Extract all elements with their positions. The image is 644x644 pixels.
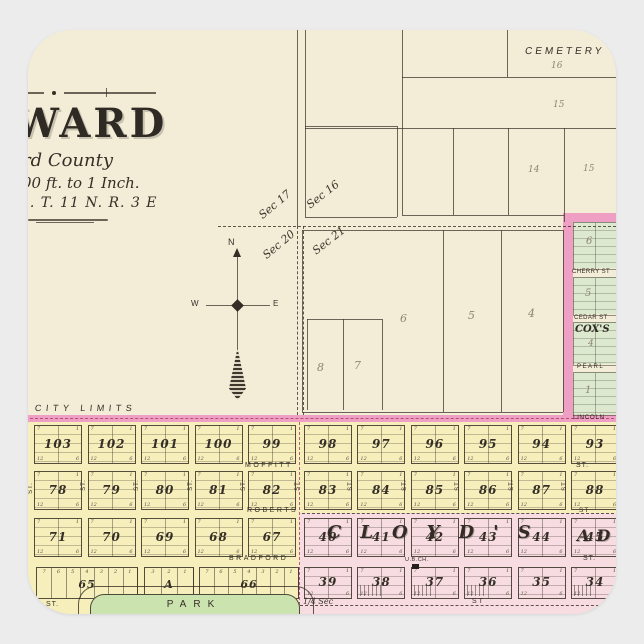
city-limits-dashes <box>30 418 614 419</box>
lot-number: 6 <box>506 550 509 555</box>
cedar-street-label: CEDAR ST <box>574 315 608 321</box>
lot-number: 6 <box>183 550 186 555</box>
city-block: 7112685 <box>411 471 459 510</box>
block-number: 81 <box>196 483 242 497</box>
block-number: 79 <box>89 483 135 497</box>
lot-number: 7 <box>37 473 40 478</box>
lot-number: 7 <box>574 569 577 574</box>
lot-number: 7 <box>91 473 94 478</box>
block-number: 94 <box>519 437 565 451</box>
south-st-label: ST <box>472 598 485 605</box>
city-block: 71126100 <box>195 425 243 464</box>
block-number: 88 <box>572 483 616 497</box>
city-block: 7112686 <box>464 471 512 510</box>
lot-number: 12 <box>91 457 97 462</box>
lot-number: 1 <box>453 427 456 432</box>
lot-number: 6 <box>129 550 132 555</box>
lot-number: 7 <box>37 520 40 525</box>
lot-number: 7 <box>574 427 577 432</box>
lot-number: 4 <box>80 569 94 575</box>
city-block: 7112667 <box>248 518 296 557</box>
lot-number: 3 <box>256 569 270 575</box>
lot-number: 6 <box>399 503 402 508</box>
lot-number: 6 <box>183 503 186 508</box>
lot-number: 6 <box>290 550 293 555</box>
outlot-number-6: 6 <box>400 312 407 325</box>
compass-west-label: W <box>191 299 199 308</box>
block-number: 82 <box>249 483 295 497</box>
lot-number: 1 <box>236 473 239 478</box>
lot-number: 12 <box>307 503 313 508</box>
pearl-street-label: PEARL <box>577 364 604 370</box>
city-block: 7112634 <box>571 567 616 599</box>
cox-block-1: 1 <box>585 385 591 396</box>
lot-number: 6 <box>613 592 616 597</box>
lot-number: 7 <box>467 427 470 432</box>
lot-number: 1 <box>76 520 79 525</box>
west-edge-street-label: ST. <box>28 482 34 494</box>
lot-number: 6 <box>129 457 132 462</box>
addition-boundary-dash <box>299 422 300 605</box>
city-block: 7112682 <box>248 471 296 510</box>
park-label: PARK <box>90 599 298 610</box>
title-flourish <box>28 219 108 221</box>
church-label: U.B.CH. <box>405 557 429 563</box>
outlot-line <box>501 230 502 412</box>
lot-number: 1 <box>613 520 616 525</box>
city-block: 7112693 <box>571 425 616 464</box>
roberts-street-dashed <box>302 513 614 514</box>
city-block: 7112681 <box>195 471 243 510</box>
lot-number: 7 <box>37 569 51 575</box>
lot-number: 6 <box>506 503 509 508</box>
lot-number: 1 <box>284 569 298 575</box>
roberts-st-suffix: ST <box>579 507 589 514</box>
parcel-number-15: 15 <box>553 100 564 110</box>
lot-number: 12 <box>521 457 527 462</box>
street-label-vertical: ST. <box>241 479 247 491</box>
cox-block <box>573 222 616 270</box>
parcel-line <box>453 128 454 215</box>
block-number: 101 <box>142 437 188 451</box>
south-street-dashed <box>300 605 614 606</box>
lot-number: 1 <box>453 473 456 478</box>
parcel-number-15b: 15 <box>583 164 594 174</box>
parcel-line <box>402 77 616 78</box>
block-number: 39 <box>305 575 351 589</box>
lot-number: 1 <box>129 473 132 478</box>
lot-number: 12 <box>360 457 366 462</box>
lot-number: 1 <box>559 520 562 525</box>
block-number: 34 <box>572 575 616 589</box>
lot-number: 12 <box>37 550 43 555</box>
lot-number: 6 <box>76 457 79 462</box>
title-ornament-cross <box>106 88 107 97</box>
outlot-line <box>302 230 303 412</box>
lot-number: 1 <box>399 473 402 478</box>
block-number: 69 <box>142 530 188 544</box>
block-number: 100 <box>196 437 242 451</box>
lot-number: 12 <box>198 503 204 508</box>
sec16-parcel-bottom <box>305 217 397 218</box>
lot-number: 6 <box>506 457 509 462</box>
street-label-vertical: ST. <box>562 479 568 491</box>
lot-number: 12 <box>467 592 473 597</box>
block-number: 103 <box>35 437 81 451</box>
lot-number: 7 <box>467 569 470 574</box>
parcel-line <box>305 128 616 129</box>
lot-number: 7 <box>251 473 254 478</box>
lot-number: 6 <box>76 550 79 555</box>
lot-number: 6 <box>399 550 402 555</box>
lot-number: 7 <box>251 427 254 432</box>
lot-number: 1 <box>613 569 616 574</box>
lot-number: 2 <box>161 569 177 575</box>
lot-number: 6 <box>453 503 456 508</box>
block-number: 97 <box>358 437 404 451</box>
lot-number: 12 <box>198 550 204 555</box>
lot-number: 7 <box>200 569 214 575</box>
city-limits-label: CITY LIMITS <box>34 403 136 413</box>
lot-number: 7 <box>37 427 40 432</box>
lot-number: 12 <box>521 503 527 508</box>
outlot-number-5: 5 <box>468 309 475 322</box>
block-number: 85 <box>412 483 458 497</box>
lot-number: 3 <box>145 569 161 575</box>
title-flourish-thin <box>36 222 94 223</box>
outlot-number-8: 8 <box>317 361 324 374</box>
lot-number: 4 <box>242 569 256 575</box>
lot-number: 7 <box>91 520 94 525</box>
lot-number: 7 <box>198 520 201 525</box>
street-label-vertical: ST. <box>188 479 194 491</box>
block-number: 95 <box>465 437 511 451</box>
block-number: 80 <box>142 483 188 497</box>
parcel-line <box>402 215 564 216</box>
block-number: 96 <box>412 437 458 451</box>
city-block: 71126102 <box>88 425 136 464</box>
lot-number: 12 <box>144 457 150 462</box>
compass-north-arrowhead <box>233 248 241 257</box>
block-number: 38 <box>358 575 404 589</box>
block-number: 67 <box>249 530 295 544</box>
lot-number: 6 <box>51 569 65 575</box>
block-number: 98 <box>305 437 351 451</box>
cox-boundary-stripe-top <box>563 213 616 222</box>
city-block: 7112671 <box>34 518 82 557</box>
outlot87-line <box>307 319 308 410</box>
city-block: 7112697 <box>357 425 405 464</box>
city-block: 7112683 <box>304 471 352 510</box>
lot-number: 7 <box>414 427 417 432</box>
city-block: 7112670 <box>88 518 136 557</box>
lot-number: 12 <box>37 503 43 508</box>
lot-number: 7 <box>307 427 310 432</box>
lot-number: 1 <box>559 427 562 432</box>
lot-number: 12 <box>467 550 473 555</box>
outlot-line <box>302 412 563 413</box>
lot-number: 1 <box>76 473 79 478</box>
city-block: 71126103 <box>34 425 82 464</box>
lot-number: 12 <box>467 457 473 462</box>
lot-number: 6 <box>214 569 228 575</box>
city-block: 7112696 <box>411 425 459 464</box>
lot-number: 6 <box>559 457 562 462</box>
city-block: 7112699 <box>248 425 296 464</box>
lot-number: 1 <box>506 569 509 574</box>
sec16-parcel-right <box>397 126 398 217</box>
lot-number: 7 <box>144 520 147 525</box>
parcel-number-16: 16 <box>551 61 562 71</box>
lot-number: 6 <box>613 550 616 555</box>
lot-number: 7 <box>360 473 363 478</box>
lot-number: 7 <box>360 427 363 432</box>
lot-number: 6 <box>453 592 456 597</box>
lot-number: 7 <box>521 473 524 478</box>
parcel-line <box>402 30 403 215</box>
lot-number: 6 <box>346 503 349 508</box>
block-number: 83 <box>305 483 351 497</box>
map-sticker: 7112610371126102711261017112610071126997… <box>28 30 616 614</box>
section-label-17: Sec 17 <box>256 187 293 221</box>
title-ornament-rule <box>64 92 156 94</box>
block-number: 93 <box>572 437 616 451</box>
city-block: 7112688 <box>571 471 616 510</box>
scale-note: 00 ft. to 1 Inch. <box>28 174 140 192</box>
lot-number: 12 <box>360 592 366 597</box>
block-number: 102 <box>89 437 135 451</box>
lot-number: 12 <box>521 550 527 555</box>
sec16-parcel-top <box>305 126 397 127</box>
lot-number: 1 <box>236 520 239 525</box>
city-block: 71126101 <box>141 425 189 464</box>
lot-number: 12 <box>414 550 420 555</box>
lot-number: 6 <box>236 457 239 462</box>
outlot-line <box>563 230 564 412</box>
lot-number: 12 <box>414 503 420 508</box>
city-block: 7112635 <box>518 567 566 599</box>
lot-number: 5 <box>66 569 80 575</box>
city-block: 7112680 <box>141 471 189 510</box>
southwest-st-label: ST. <box>46 601 59 608</box>
lot-number: 1 <box>177 569 193 575</box>
lot-number: 1 <box>346 473 349 478</box>
lot-number: 1 <box>236 427 239 432</box>
lot-number: 7 <box>467 473 470 478</box>
title-ornament-dot <box>52 91 56 95</box>
parcel-number-14: 14 <box>528 165 539 175</box>
lot-number: 12 <box>91 503 97 508</box>
moffitt-street-label: MOFFITT <box>245 462 293 469</box>
cemetery-label: CEMETERY <box>524 46 605 57</box>
lot-number: 1 <box>183 520 186 525</box>
block-number: 84 <box>358 483 404 497</box>
lot-number: 12 <box>37 457 43 462</box>
lot-number: 7 <box>414 569 417 574</box>
lot-number: 1 <box>129 520 132 525</box>
county-subtitle: rd County <box>28 150 113 171</box>
lot-number: 12 <box>414 592 420 597</box>
lot-number: 6 <box>559 550 562 555</box>
street-label-vertical: ST. <box>348 479 354 491</box>
city-block: 7112679 <box>88 471 136 510</box>
lot-number: 1 <box>183 473 186 478</box>
city-block: 7112678 <box>34 471 82 510</box>
city-block: 7112687 <box>518 471 566 510</box>
outlot87-line <box>307 319 382 320</box>
parcel-line <box>507 30 508 77</box>
lot-number: 1 <box>76 427 79 432</box>
lot-number: 1 <box>559 473 562 478</box>
street-label-vertical: ST. <box>509 479 515 491</box>
block-number: 99 <box>249 437 295 451</box>
cox-block-5: 5 <box>585 288 591 299</box>
lot-number: 1 <box>399 569 402 574</box>
lot-number: 1 <box>183 427 186 432</box>
lot-number: 7 <box>91 427 94 432</box>
cox-block <box>573 277 616 316</box>
section-label-21: Sec 21 <box>310 224 348 257</box>
lot-number: 6 <box>559 503 562 508</box>
lot-number: 12 <box>574 550 580 555</box>
cloyds-addition-continued: AD <box>577 526 616 545</box>
block-number: 87 <box>519 483 565 497</box>
cox-boundary-stripe-left <box>563 222 573 422</box>
lot-number: 6 <box>399 592 402 597</box>
page-title: WARD <box>28 100 167 147</box>
quarter-road-dash-right <box>303 226 304 415</box>
city-block: 7112695 <box>464 425 512 464</box>
lot-number: 7 <box>574 473 577 478</box>
lot-number: 1 <box>346 427 349 432</box>
cloyds-addition-name: CLOYD'S <box>327 522 550 543</box>
lot-number: 7 <box>144 473 147 478</box>
city-block: 7112669 <box>141 518 189 557</box>
outlot87-line <box>343 319 344 410</box>
lot-number: 12 <box>307 457 313 462</box>
parcel-line <box>305 30 306 217</box>
city-block: 7112637 <box>411 567 459 599</box>
compass-north-label: N <box>228 237 235 247</box>
lot-number: 6 <box>346 457 349 462</box>
city-block: 7112698 <box>304 425 352 464</box>
lot-number: 7 <box>198 427 201 432</box>
city-block: 7112638 <box>357 567 405 599</box>
outlot87-line <box>382 319 383 410</box>
sticker-background: 7112610371126102711261017112610071126997… <box>0 0 644 644</box>
compass-center-diamond <box>231 299 244 312</box>
lot-number: 6 <box>453 550 456 555</box>
block-number: 71 <box>35 530 81 544</box>
parcel-line <box>564 128 565 222</box>
lot-number: 12 <box>91 550 97 555</box>
lot-number: 7 <box>574 520 577 525</box>
lot-number: 1 <box>123 569 137 575</box>
lot-number: 1 <box>346 569 349 574</box>
lot-number: 3 <box>94 569 108 575</box>
lot-number: 5 <box>228 569 242 575</box>
lot-number: 12 <box>521 592 527 597</box>
compass-east-label: E <box>273 299 278 308</box>
block-number: 70 <box>89 530 135 544</box>
lot-number: 7 <box>414 473 417 478</box>
lot-number: 7 <box>251 520 254 525</box>
lot-number: 1 <box>290 520 293 525</box>
lot-number: 6 <box>453 457 456 462</box>
lot-number: 1 <box>290 473 293 478</box>
lot-number: 7 <box>198 473 201 478</box>
church-building-symbol <box>412 564 419 569</box>
quarter-road-dash-left <box>297 226 298 415</box>
lincoln-street-label: LINCOLN <box>573 414 605 421</box>
lot-number: 7 <box>521 427 524 432</box>
lot-number: 1 <box>399 427 402 432</box>
block-number: 68 <box>196 530 242 544</box>
lot-number: 12 <box>198 457 204 462</box>
block-number: 35 <box>519 575 565 589</box>
cox-block <box>573 372 616 416</box>
section-line-dashed <box>218 226 616 227</box>
outlot-number-4: 4 <box>528 307 535 320</box>
title-ornament-dash <box>28 92 44 94</box>
lot-number: 7 <box>307 520 310 525</box>
lot-number: 6 <box>399 457 402 462</box>
lot-number: 12 <box>414 457 420 462</box>
lot-number: 6 <box>613 457 616 462</box>
compass-tail-feather <box>229 348 246 400</box>
lot-number: 1 <box>613 427 616 432</box>
parcel-line <box>508 128 509 215</box>
lot-number: 12 <box>307 550 313 555</box>
lot-number: 1 <box>506 427 509 432</box>
cherry-street-label: CHERRY ST <box>572 269 610 275</box>
lot-number: 12 <box>144 550 150 555</box>
township-note: 1. T. 11 N. R. 3 E <box>28 195 158 211</box>
section-label-20: Sec 20 <box>260 227 297 261</box>
moffitt-st-suffix: ST. <box>576 462 589 469</box>
lot-number: 6 <box>613 503 616 508</box>
lot-number: 6 <box>346 550 349 555</box>
block-number: 86 <box>465 483 511 497</box>
bradford-street-label: BRADFORD <box>229 555 288 562</box>
street-label-vertical: ST. <box>402 479 408 491</box>
lot-number: 6 <box>183 457 186 462</box>
street-label-vertical: ST. <box>455 479 461 491</box>
lot-number: 7 <box>144 427 147 432</box>
city-block: 7112668 <box>195 518 243 557</box>
cox-block-6: 6 <box>586 236 592 247</box>
lot-number: 6 <box>559 592 562 597</box>
roberts-street-label: ROBERTS <box>247 507 298 514</box>
lot-number: 12 <box>574 592 580 597</box>
section-label-16: Sec 16 <box>304 178 342 211</box>
city-block: 7112694 <box>518 425 566 464</box>
cox-addition-name: COX'S <box>575 324 610 335</box>
lot-number: 6 <box>76 503 79 508</box>
bradford-st-suffix: ST. <box>583 555 596 562</box>
lot-number: 6 <box>129 503 132 508</box>
lot-number: 1 <box>506 473 509 478</box>
lot-number: 1 <box>129 427 132 432</box>
outlot-number-7: 7 <box>354 359 361 372</box>
lot-number: 12 <box>360 503 366 508</box>
block-number: 37 <box>412 575 458 589</box>
street-label-vertical: ST. <box>134 479 140 491</box>
lot-number: 2 <box>108 569 122 575</box>
lot-number: 7 <box>307 569 310 574</box>
city-block: 7112636 <box>464 567 512 599</box>
lot-number: 12 <box>360 550 366 555</box>
